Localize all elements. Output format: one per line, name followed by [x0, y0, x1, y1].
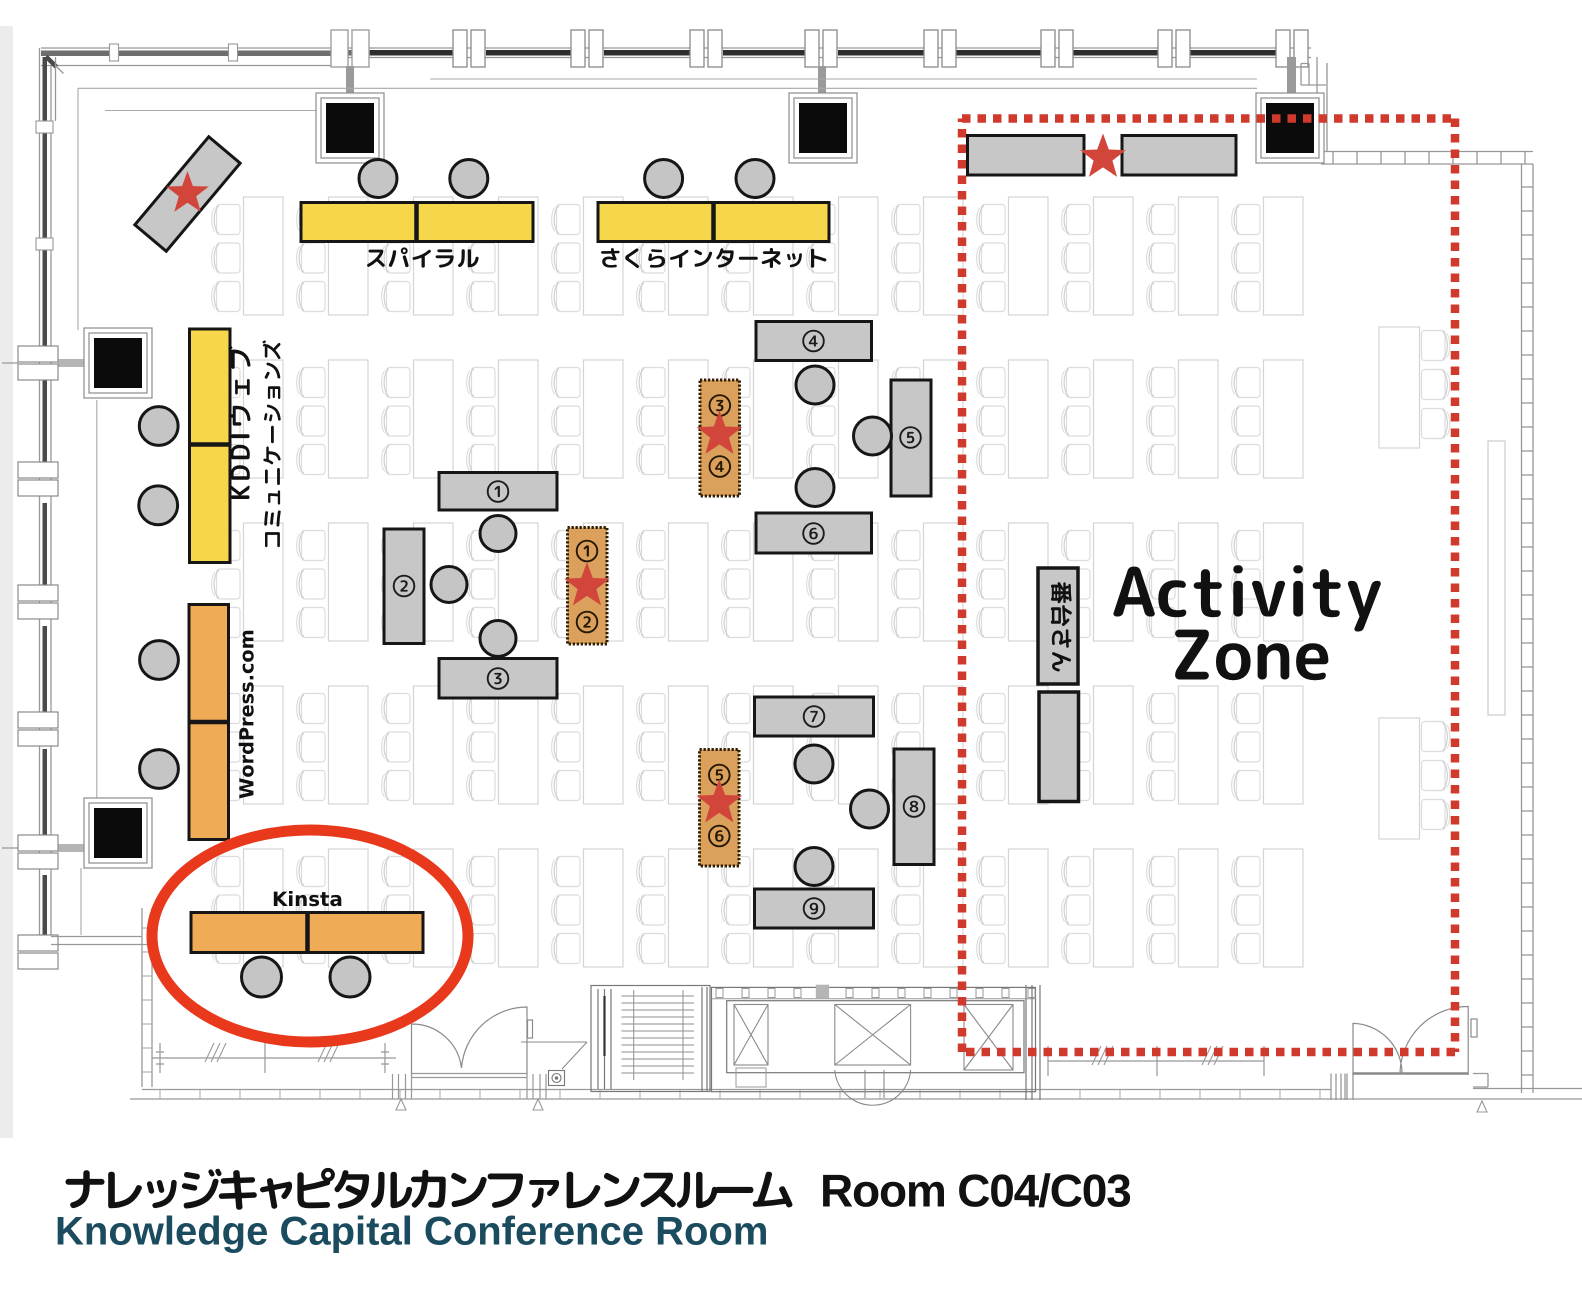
- svg-text:Knowledge Capital Conference R: Knowledge Capital Conference Room: [55, 1209, 768, 1253]
